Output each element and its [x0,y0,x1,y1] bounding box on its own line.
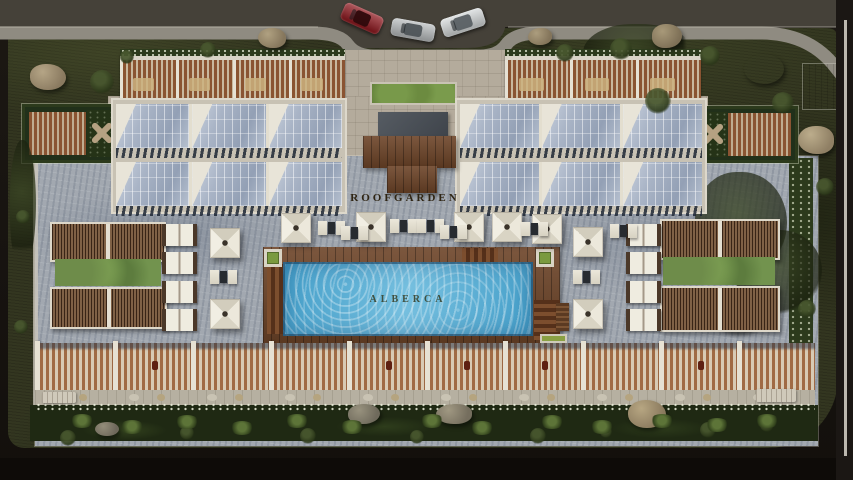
pergola [660,219,780,260]
louvered-bay [118,343,191,390]
terrace-bay [233,60,289,98]
fern [120,420,144,434]
bush [300,428,316,444]
panel-frame-wedge [269,162,289,206]
seating-cluster [521,220,548,238]
terrace-furniture [519,78,544,91]
pool-steps-left [267,264,283,334]
fern [230,421,254,435]
bay-marker [542,361,548,370]
cabana-seat [162,252,197,274]
terrace-furniture [133,78,154,91]
louvered-bay [742,343,815,390]
terrace-furniture [585,78,610,91]
seating-cluster [573,268,600,286]
terrace-group [120,54,345,100]
glass-panel [116,162,189,206]
glass-panel [623,162,702,206]
glass-panel [460,104,539,148]
bay-marker [152,361,158,370]
terrace-bay [570,60,635,98]
glass-panel [542,162,621,206]
patio-furniture [285,394,295,401]
patio-furniture [313,394,321,401]
terrace-furniture [245,78,266,91]
entry-planter [372,84,455,103]
rock [744,54,784,84]
agave-plant-strip [116,148,342,158]
pergola [50,222,166,262]
bush [410,430,424,444]
terrace-bay [120,60,176,98]
glass-panel [269,104,342,148]
terrace-furniture [189,78,210,91]
planting-between-pergolas [663,257,775,285]
patio-furniture [79,394,87,401]
pool-label: ALBERCA [370,294,447,305]
bush [16,210,30,224]
rock [798,126,834,154]
seating-cluster [341,224,368,242]
panel-frame-wedge [623,104,643,148]
panel-frame-wedge [542,104,562,148]
side-terrace-left [25,107,120,160]
bush [60,430,76,446]
patio-furniture [363,394,373,401]
terrace-group [505,54,701,100]
right-road-edge-line [844,20,847,456]
bush [700,46,720,66]
seating-cluster [390,217,417,235]
terrace-furniture [301,78,322,91]
panel-frame-wedge [192,162,212,206]
pergola [660,286,780,332]
panel-frame-wedge [460,104,480,148]
patio-umbrella [573,227,603,257]
skylight-block [113,100,345,212]
panel-frame-wedge [623,162,643,206]
x-topiary-icon [90,122,114,144]
skylight-row [116,104,342,148]
terrace-deck [728,113,791,156]
louvered-bay [664,343,737,390]
terrace-bay [176,60,232,98]
fern [590,420,614,434]
cabana-seat [626,252,661,274]
fern [540,415,564,429]
fern [470,421,494,435]
terrace-bay [289,60,345,98]
terrace-bay [505,60,570,98]
wood-deck-upper [363,136,456,168]
fern [705,418,729,432]
skylight-block [457,100,705,212]
pool: ALBERCA [283,262,533,336]
side-terrace-right [698,109,795,160]
panel-frame-wedge [116,162,136,206]
cabana-seat [162,309,197,331]
louvered-unit-bays [35,343,815,390]
patio-furniture [597,394,607,401]
roofgarden-label: ROOFGARDEN [330,192,480,204]
rock [528,28,552,45]
fern [285,414,309,428]
louvered-bay [508,343,581,390]
patio-furniture [519,394,529,401]
patio-umbrella [210,228,240,258]
patio-furniture [703,394,711,401]
rooftop-aerial-render: ROOFGARDEN ALBERCA [0,0,853,480]
pergola [50,287,167,329]
terrace-hedge-left [120,49,345,56]
wood-bench [556,303,569,331]
panel-frame-wedge [192,104,212,148]
seating-cluster [610,222,637,240]
terrace-deck [29,112,86,155]
agave-plant-strip [460,148,702,158]
louvered-bay [40,343,113,390]
fern [650,414,674,428]
fern [175,415,199,429]
louvered-bay [352,343,425,390]
bay-marker [386,361,392,370]
bush [14,320,28,334]
cabana-seat [626,281,661,303]
louvered-bay [196,343,269,390]
louvered-bay [586,343,659,390]
utility-pad [803,64,839,109]
cabana-seat [626,309,661,331]
bay-marker [464,361,470,370]
panel-frame-wedge [269,104,289,148]
car-roof [403,22,423,37]
seating-cluster [440,223,467,241]
panel-frame-wedge [542,162,562,206]
bush [120,50,134,64]
fern [70,414,94,428]
rock [30,64,66,90]
pool-steps-top [462,248,498,263]
fern [755,414,779,428]
pool-planter-left [264,249,282,267]
bench [42,392,76,403]
patio-furniture [441,394,451,401]
patio-furniture [157,394,165,401]
panel-frame-wedge [116,104,136,148]
patio-furniture [469,394,477,401]
patio-umbrella [210,299,240,329]
patio-furniture [235,394,243,401]
flower-hedge-row [35,403,815,411]
glass-panel [192,162,265,206]
bush [772,92,794,114]
bush [798,300,816,318]
terrace-hedge-right [505,49,701,56]
bush [816,178,834,196]
bush [530,428,546,444]
rock [258,28,286,48]
patio-furniture [625,394,633,401]
planting-between-pergolas [55,259,161,286]
fern [340,420,364,434]
skylight-row [460,162,702,206]
louvered-bay [274,343,347,390]
skylight-row [116,162,342,206]
patio-furniture [391,394,399,401]
cabana-seat [162,281,197,303]
patio-furniture [675,394,685,401]
pool-planter-bottom [540,334,567,343]
fern [420,414,444,428]
patio-umbrella [573,299,603,329]
patio-furniture [129,394,139,401]
bush [645,88,671,114]
seating-cluster [210,268,237,286]
bush [556,44,574,62]
glass-panel [192,104,265,148]
rock [95,422,119,436]
bench [756,389,796,402]
bush [90,70,114,94]
wood-deck-lower [387,166,437,193]
patio-umbrella [492,212,522,242]
patio-umbrella [281,213,311,243]
patio-furniture [207,394,217,401]
glass-panel [116,104,189,148]
louvered-bay [430,343,503,390]
patio-furniture [547,394,555,401]
pool-planter-right [536,249,554,267]
cabana-seat [162,224,197,246]
street-lower-band [0,458,853,480]
bush [610,38,632,60]
bush [200,42,216,58]
bay-marker [698,361,704,370]
glass-panel [542,104,621,148]
